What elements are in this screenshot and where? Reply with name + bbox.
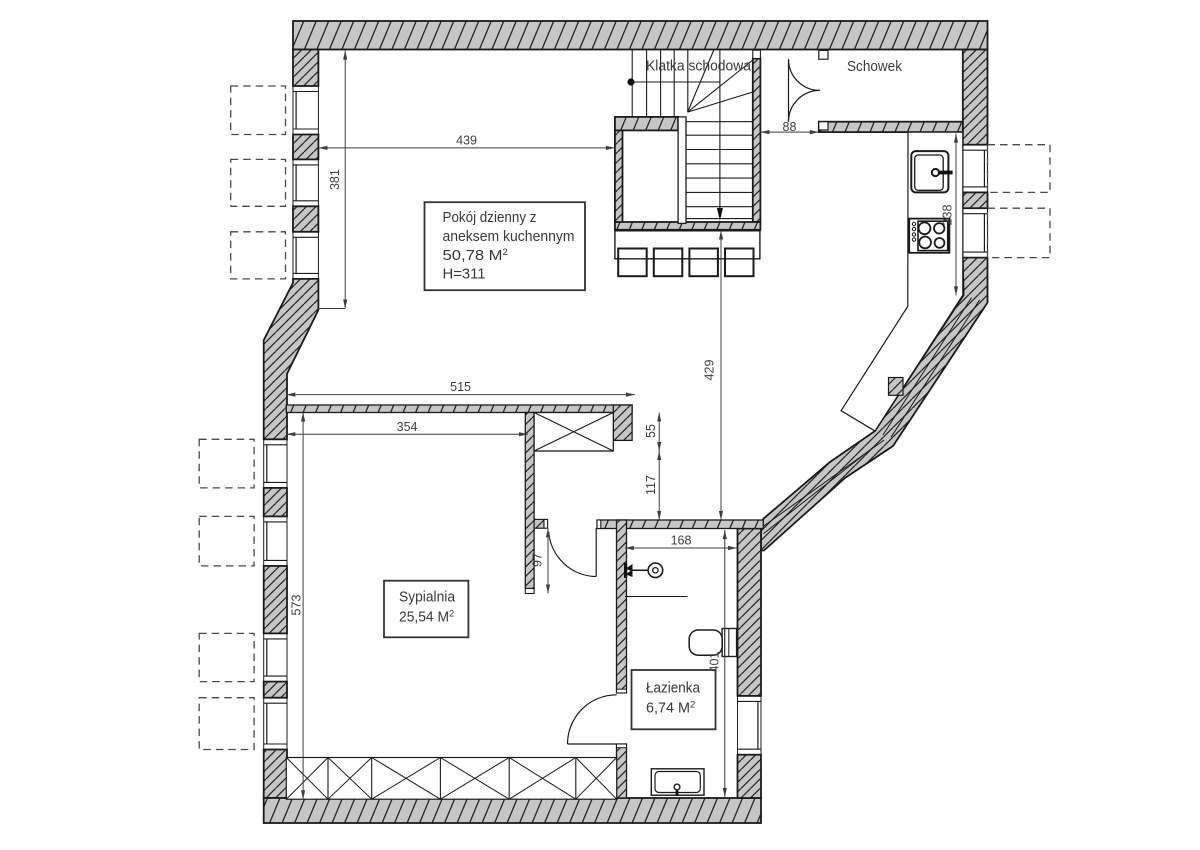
svg-text:50,78 M2: 50,78 M2: [443, 247, 508, 264]
svg-text:168: 168: [671, 534, 692, 548]
svg-text:25,54 M2: 25,54 M2: [399, 609, 454, 626]
svg-text:401: 401: [708, 652, 722, 673]
svg-text:Schowek: Schowek: [847, 58, 902, 75]
svg-text:H=311: H=311: [443, 266, 486, 283]
svg-text:6,74 M2: 6,74 M2: [646, 700, 695, 717]
svg-text:439: 439: [456, 134, 477, 148]
svg-text:Pokój dzienny z: Pokój dzienny z: [443, 209, 537, 226]
svg-text:Klatka schodowa: Klatka schodowa: [646, 58, 752, 75]
svg-text:88: 88: [783, 120, 797, 134]
svg-text:354: 354: [397, 420, 418, 434]
svg-text:429: 429: [703, 360, 717, 381]
svg-text:Łazienka: Łazienka: [646, 680, 701, 697]
svg-text:238: 238: [941, 205, 955, 226]
svg-text:117: 117: [644, 475, 658, 495]
svg-text:Sypialnia: Sypialnia: [399, 589, 456, 606]
svg-text:381: 381: [328, 169, 342, 190]
svg-text:573: 573: [290, 595, 304, 616]
svg-text:515: 515: [450, 380, 471, 394]
svg-text:97: 97: [531, 553, 545, 567]
svg-text:55: 55: [644, 424, 658, 438]
svg-text:aneksem kuchennym: aneksem kuchennym: [443, 228, 575, 245]
